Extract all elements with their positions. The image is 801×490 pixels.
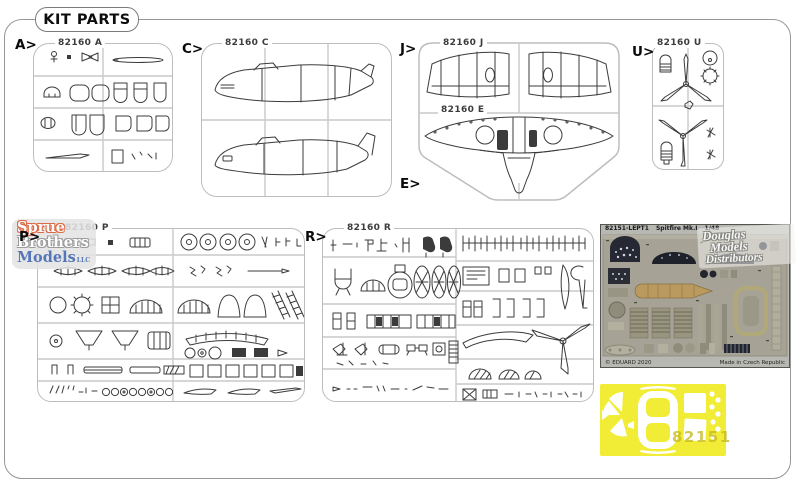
sprue-j-arrow-label: J>: [400, 41, 416, 57]
sprue-u-code-label: 82160 U: [654, 38, 705, 48]
sprue-p-arrow-label: P>: [19, 229, 40, 245]
sprue-c-parts-drawing: [202, 44, 391, 196]
mask-sheet: 82151: [600, 384, 726, 456]
sprue-u-arrow-label: U>: [632, 44, 654, 60]
watermark-word-models: ModelsLLC: [17, 250, 96, 268]
sprue-u-parts-drawing: [653, 44, 723, 169]
watermark-suffix-llc: LLC: [77, 257, 90, 264]
sprue-c-frame: [201, 43, 392, 197]
sprue-a-frame: [33, 43, 173, 172]
sprue-r-frame: [322, 228, 594, 402]
page-title: KIT PARTS: [43, 12, 130, 28]
sprue-j-code-label: 82160 J: [440, 38, 487, 48]
pe-copyright: © EDUARD 2020: [605, 360, 652, 366]
kit-parts-title-box: KIT PARTS: [35, 7, 139, 32]
distributor-stamp: Douglas Models Distributors: [697, 223, 796, 268]
sprue-je-frame: [413, 38, 625, 210]
instruction-sheet-page: KIT PARTS A> 82160 A: [0, 0, 801, 490]
sprue-a-parts-drawing: [34, 44, 172, 171]
pe-kit-name: Spitfire Mk.I: [656, 225, 698, 232]
sprue-r-parts-drawing: [323, 229, 593, 401]
sprue-je-parts-drawing: [413, 38, 625, 210]
sprue-u-frame: [652, 43, 724, 170]
sprue-e-arrow-label: E>: [400, 176, 421, 192]
sprue-a-arrow-label: A>: [15, 37, 37, 53]
pe-made-in: Made in Czech Republic: [720, 360, 785, 366]
sprue-c-code-label: 82160 C: [222, 38, 272, 48]
sprue-e-code-label: 82160 E: [438, 105, 487, 115]
sprue-r-code-label: 82160 R: [344, 223, 394, 233]
sprue-r-arrow-label: R>: [305, 229, 327, 245]
sprue-a-code-label: 82160 A: [55, 38, 105, 48]
pe-part-number: 82151-LEPT1: [605, 225, 649, 232]
mask-sheet-number: 82151: [672, 428, 732, 446]
sprue-c-arrow-label: C>: [182, 41, 203, 57]
